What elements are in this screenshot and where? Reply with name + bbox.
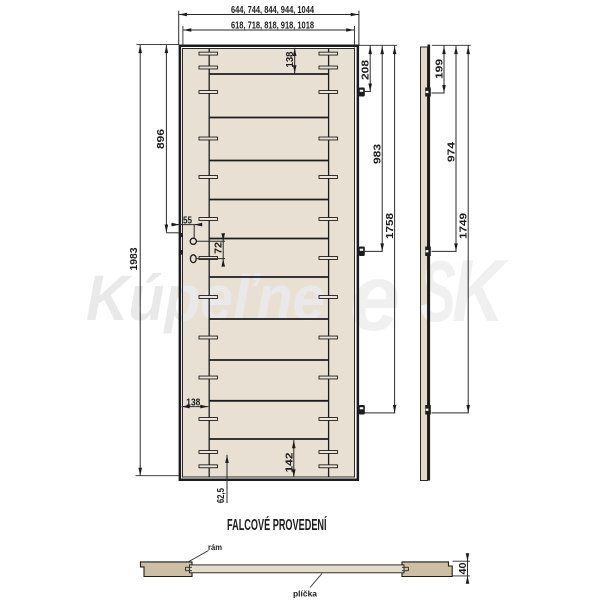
svg-text:72: 72 [214, 242, 225, 254]
svg-text:S: S [420, 244, 456, 340]
svg-text:K: K [452, 242, 508, 340]
svg-text:40: 40 [458, 563, 469, 575]
svg-text:1758: 1758 [385, 212, 396, 239]
svg-text:208: 208 [361, 59, 372, 80]
svg-text:rám: rám [208, 542, 222, 552]
svg-text:138: 138 [285, 51, 296, 68]
svg-text:199: 199 [435, 58, 446, 79]
svg-text:1983: 1983 [129, 247, 140, 271]
svg-text:1749: 1749 [459, 212, 470, 239]
svg-text:618, 718, 818, 918, 1018: 618, 718, 818, 918, 1018 [231, 21, 314, 32]
svg-text:62,5: 62,5 [216, 488, 227, 503]
svg-text:plíčka: plíčka [293, 589, 317, 599]
svg-text:896: 896 [156, 128, 167, 149]
svg-text:55: 55 [183, 216, 193, 227]
svg-text:974: 974 [447, 141, 458, 162]
svg-text:FALCOVÉ PROVEDENÍ: FALCOVÉ PROVEDENÍ [227, 517, 327, 534]
svg-text:142: 142 [284, 453, 295, 473]
svg-text:983: 983 [373, 143, 384, 164]
svg-text:644, 744, 844, 944, 1044: 644, 744, 844, 944, 1044 [231, 5, 314, 16]
svg-text:138: 138 [186, 397, 201, 408]
